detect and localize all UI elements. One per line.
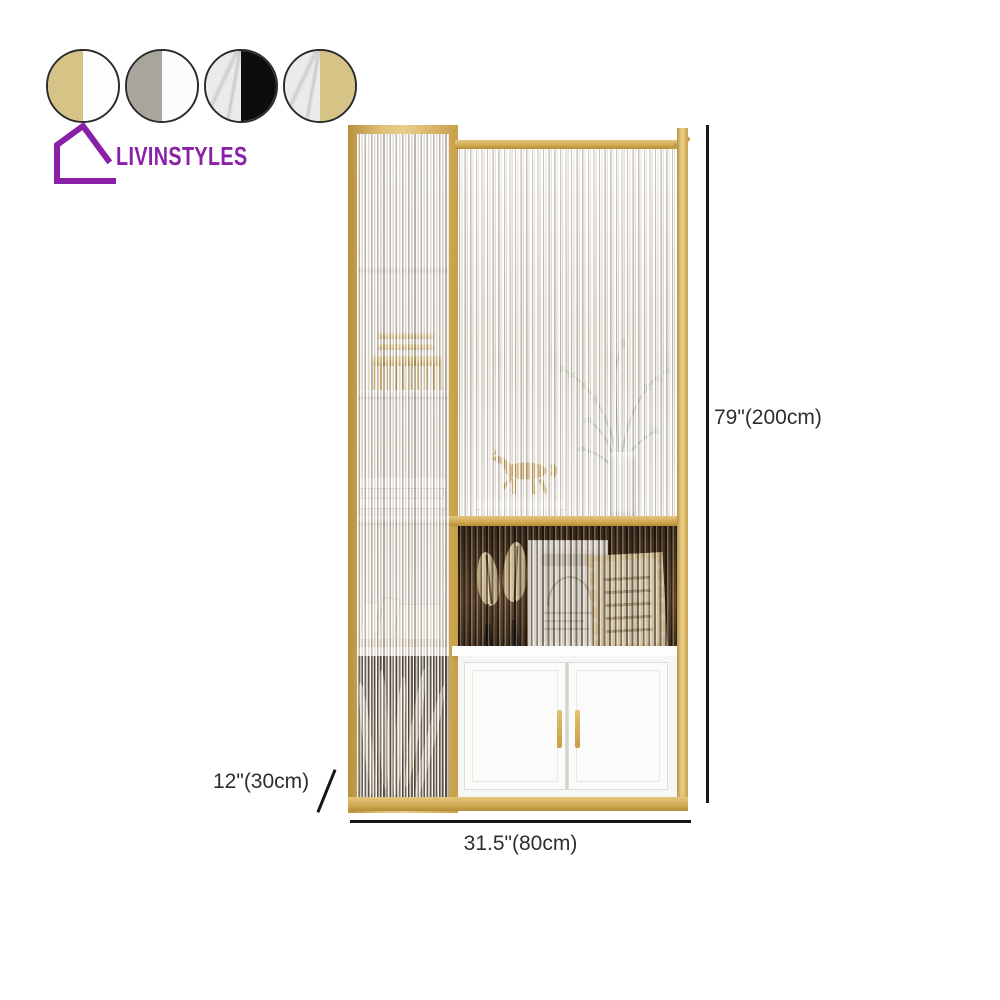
swatch-half-right: [241, 51, 276, 121]
feather-stem: [514, 600, 516, 622]
brand-name: LIVINSTYLES: [116, 141, 248, 172]
door-handle-right[interactable]: [575, 710, 580, 748]
gold-lantern: [378, 344, 434, 350]
shelf: [357, 263, 449, 270]
sketch-line: [544, 628, 590, 630]
product-listing-image: LIVINSTYLES: [0, 0, 1000, 1000]
swatch-marble-gold[interactable]: [283, 49, 357, 123]
cabinet-door-left[interactable]: [464, 662, 566, 790]
height-dimension-label: 79"(200cm): [714, 406, 822, 430]
gold-lantern: [378, 333, 434, 339]
stacked-books: [360, 478, 446, 489]
gold-lantern-bars: [372, 366, 442, 392]
swatch-marble-black[interactable]: [204, 49, 278, 123]
door-seam: [566, 662, 568, 790]
swatch-half-left: [127, 51, 162, 121]
swatch-half-right: [320, 51, 355, 121]
left-column-glass: [357, 134, 449, 804]
shelf: [357, 390, 449, 397]
glass-vase: [610, 452, 638, 516]
stacked-books: [361, 499, 445, 509]
swatch-half-left: [48, 51, 83, 121]
sketch-arch: [547, 576, 593, 606]
shelf: [357, 516, 449, 523]
bottom-frame-bar: [348, 797, 688, 811]
stacked-books: [481, 509, 561, 516]
depth-dimension-label: 12"(30cm): [213, 770, 309, 794]
swatch-grey-white[interactable]: [125, 49, 199, 123]
cushion-text-lines: [603, 571, 652, 633]
pampas-grass: [357, 682, 379, 802]
feather-ornament: [501, 541, 528, 602]
display-glass-panel: [458, 149, 677, 516]
right-frame-post: [677, 128, 688, 798]
height-dimension-line: [706, 125, 709, 803]
swatch-half-left: [206, 51, 241, 121]
width-dimension-line: [350, 820, 691, 823]
top-frame-bar: [455, 140, 688, 149]
cabinet-door-right[interactable]: [568, 662, 668, 790]
swatch-half-right: [83, 51, 118, 121]
depth-dimension-tick: [316, 769, 336, 813]
middle-shelf-bar: [449, 516, 688, 526]
swatch-gold-white[interactable]: [46, 49, 120, 123]
shelf: [357, 647, 449, 656]
product-photo[interactable]: [340, 118, 712, 828]
gold-horse-figurine: [488, 448, 560, 502]
sketch-line: [544, 620, 584, 622]
cabinet-top-surface: [452, 646, 683, 656]
left-column-lower-glass: [357, 656, 449, 804]
open-display-niche: [458, 526, 677, 650]
door-handle-left[interactable]: [557, 710, 562, 748]
branch-plant: [540, 325, 677, 475]
feather-ornament: [474, 551, 502, 607]
width-dimension-label: 31.5"(80cm): [350, 832, 691, 856]
sketch-top-band: [542, 554, 594, 566]
swatch-half-left: [285, 51, 320, 121]
cabinet-body: [458, 656, 677, 798]
divider-left-column-frame: [348, 125, 458, 813]
swatch-half-right: [162, 51, 197, 121]
gold-lantern: [372, 356, 442, 366]
color-swatches: [46, 49, 357, 123]
house-icon: [46, 118, 120, 188]
sketch-line: [544, 612, 592, 614]
stacked-books: [363, 489, 443, 499]
fringed-cushion: [589, 552, 668, 650]
pampas-grass: [377, 670, 390, 790]
